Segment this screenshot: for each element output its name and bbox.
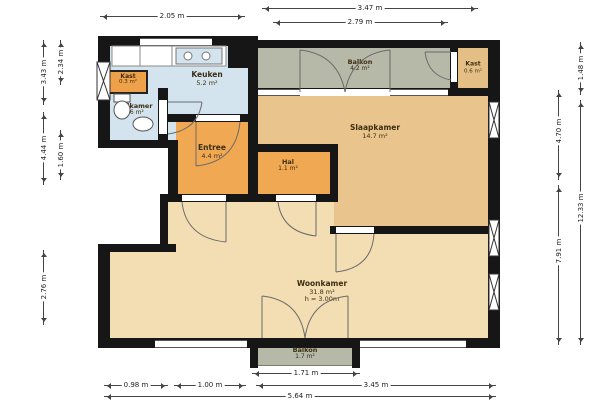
room-label-kast-right: Kast 0.6 m²	[464, 61, 482, 74]
dimension-label: 2.34 m	[57, 48, 65, 77]
dimension-label: 1.60 m	[57, 141, 65, 170]
door-opening	[451, 52, 457, 82]
dimension-label: 2.79 m	[346, 18, 375, 26]
room-label-hal: Hal 1.1 m²	[278, 159, 298, 173]
window	[155, 340, 247, 348]
room-label-balkon-bottom: Balkon 1.7 m²	[293, 347, 318, 361]
room-area: 2.6 m²	[115, 110, 152, 117]
room-label-kast-left: Kast 0.3 m²	[108, 70, 148, 94]
window	[258, 89, 300, 96]
door-opening	[276, 195, 316, 201]
dimension-label: 5.64 m	[286, 392, 315, 400]
wall	[252, 144, 338, 152]
door-opening	[182, 195, 226, 201]
wall	[160, 194, 168, 252]
wall	[98, 244, 110, 348]
door-opening	[300, 89, 390, 96]
room-area: 0.6 m²	[464, 68, 482, 74]
wall	[250, 338, 258, 368]
dimension-label: 3.47 m	[356, 4, 385, 12]
dimension-label: 4.70 m	[555, 117, 563, 146]
wall	[168, 140, 178, 202]
window	[140, 38, 212, 46]
door-opening	[196, 115, 240, 121]
door-opening	[336, 227, 374, 233]
room-label-entree: Entree 4.4 m²	[198, 144, 226, 160]
room-area: 1.1 m²	[278, 166, 298, 173]
dimension-label: 0.98 m	[122, 381, 151, 389]
room-area: 4.2 m²	[348, 66, 373, 73]
kitchen-appliance-block	[228, 42, 254, 68]
room-area: 4.4 m²	[198, 153, 226, 160]
dimension-label: 1.71 m	[292, 369, 321, 377]
room-woonkamer-floor	[106, 250, 168, 340]
room-label-keuken: Keuken 5.2 m²	[191, 71, 222, 87]
room-woonkamer-floor	[166, 200, 334, 340]
dimension-label: 1.48 m	[577, 54, 585, 83]
room-height-note: h = 3.00m	[297, 296, 347, 303]
wall	[352, 338, 360, 368]
room-label-slaapkamer: Slaapkamer 14.7 m²	[350, 124, 400, 140]
door-opening	[159, 100, 167, 134]
room-label-balkon-top: Balkon 4.2 m²	[348, 59, 373, 73]
window	[390, 89, 448, 96]
dimension-label: 12.33 m	[577, 191, 585, 224]
room-area: 5.2 m²	[191, 80, 222, 87]
room-area: 14.7 m²	[350, 133, 400, 140]
dimension-label: 7.91 m	[555, 237, 563, 266]
window	[360, 340, 466, 348]
room-label-woonkamer: Woonkamer 31.8 m² h = 3.00m	[297, 280, 347, 304]
dimension-label: 2.76 m	[40, 273, 48, 302]
dimension-label: 3.45 m	[362, 381, 391, 389]
dimension-label: 2.05 m	[158, 12, 187, 20]
dimension-label: 1.00 m	[196, 381, 225, 389]
room-woonkamer-floor	[330, 232, 490, 340]
floorplan-canvas: Kast 0.3 m² Keuken 5.2 m² Badkamer 2.6 m…	[0, 0, 600, 400]
wall	[248, 40, 500, 48]
room-area: 1.7 m²	[293, 354, 318, 361]
room-name: Kast	[464, 61, 482, 68]
room-area: 0.3 m²	[110, 80, 146, 86]
dimension-label: 3.43 m	[40, 58, 48, 87]
dimension-label: 4.44 m	[40, 134, 48, 163]
room-label-badkamer: Badkamer 2.6 m²	[115, 103, 152, 117]
